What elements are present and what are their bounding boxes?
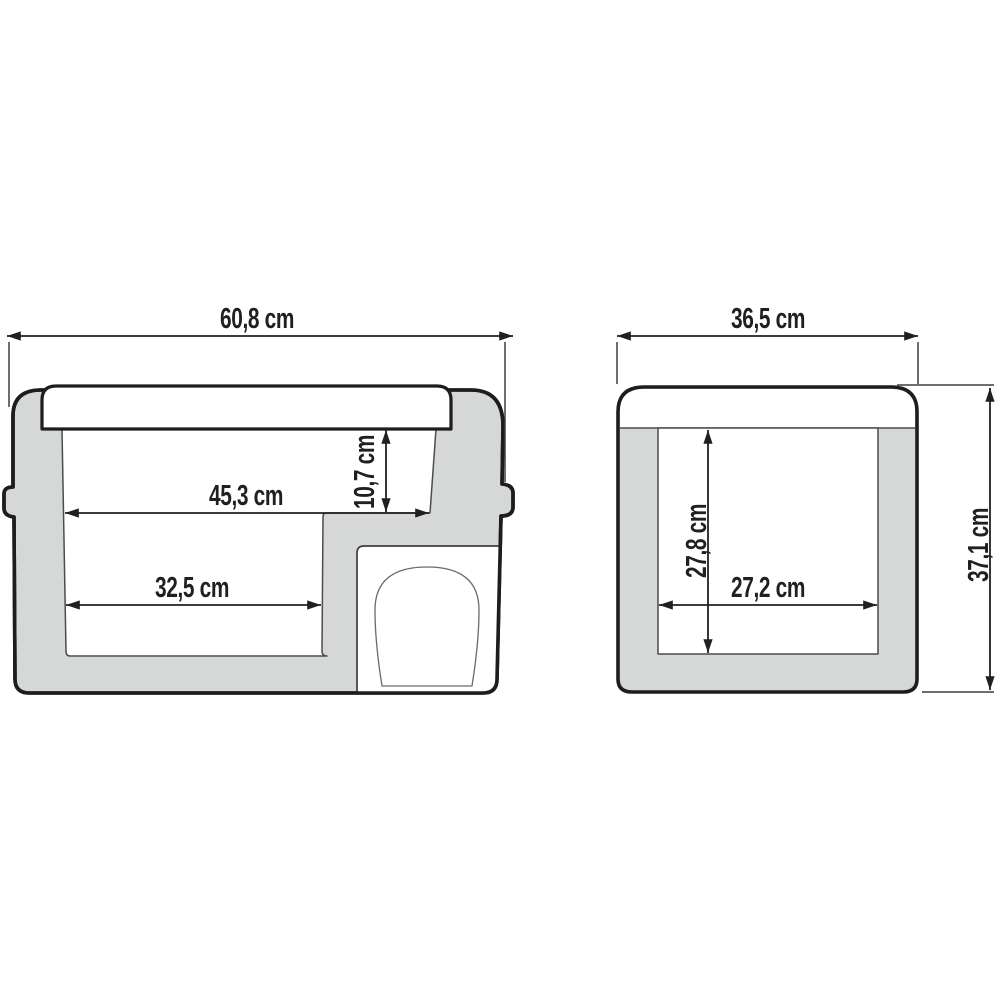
dimension-label-step-depth: 10,7 cm xyxy=(349,435,381,509)
dimension-front-overall-width: 36,5 cm xyxy=(617,303,918,384)
dimension-side-step-depth: 10,7 cm xyxy=(349,430,386,512)
dimension-label-front-overall-width: 36,5 cm xyxy=(731,303,805,335)
cooler-dimension-drawing: 60,8 cm 45,3 cm 10,7 cm 32,5 cm xyxy=(0,0,1000,1000)
dimension-label-inner-upper-width: 45,3 cm xyxy=(209,480,283,512)
side-view: 60,8 cm 45,3 cm 10,7 cm 32,5 cm xyxy=(4,303,513,693)
cooler-lid-front xyxy=(620,389,915,428)
dimension-label-inner-height: 27,8 cm xyxy=(681,504,713,578)
dimension-label-overall-height: 37,1 cm xyxy=(963,508,995,582)
dimension-label-inner-lower-width: 32,5 cm xyxy=(155,572,229,604)
dimension-label-side-overall-width: 60,8 cm xyxy=(220,303,294,335)
dimension-label-inner-width: 27,2 cm xyxy=(731,572,805,604)
dimension-diagram: 60,8 cm 45,3 cm 10,7 cm 32,5 cm xyxy=(0,0,1000,1000)
compressor-dome-icon xyxy=(375,567,479,686)
front-view: 36,5 cm 27,8 cm 27,2 cm 37,1 cm xyxy=(617,303,995,692)
cooler-lid-side xyxy=(42,386,451,429)
